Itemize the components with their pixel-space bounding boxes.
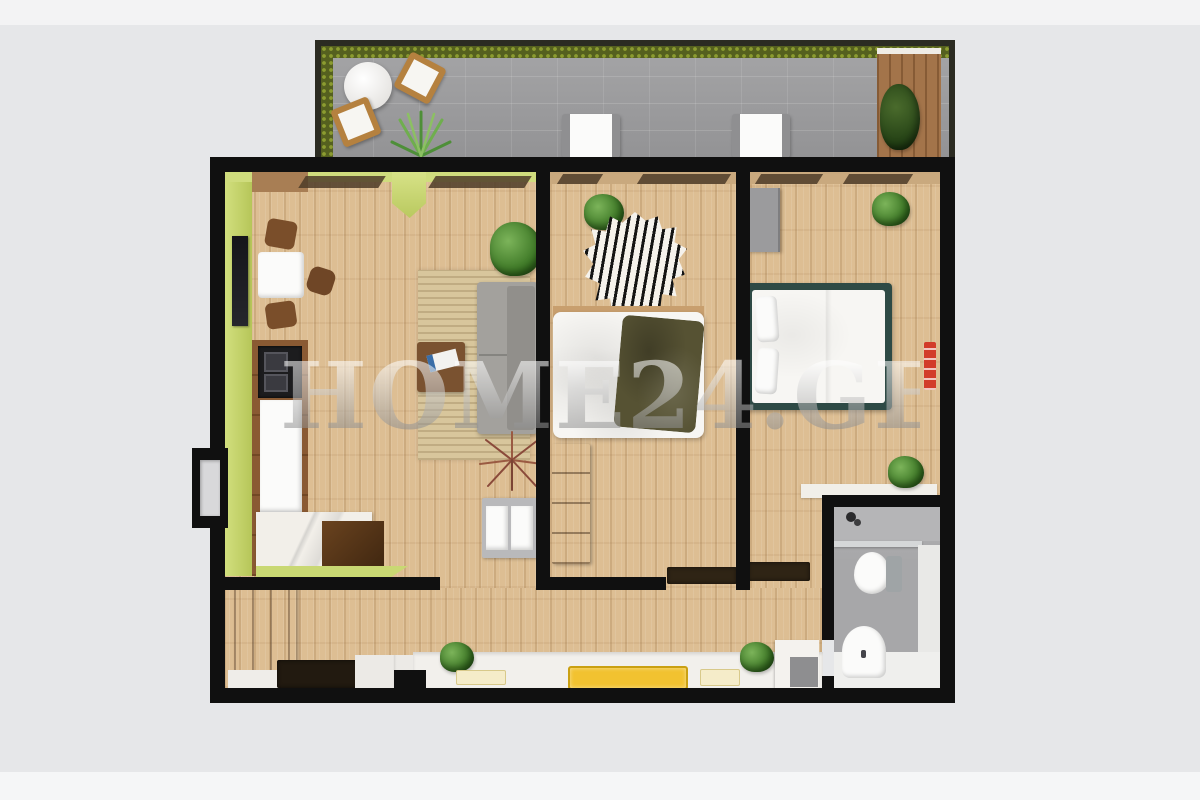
bed2-pillow-1 bbox=[754, 295, 779, 342]
bedroom1-window-pane-1 bbox=[557, 174, 603, 184]
hallway-plant-left bbox=[440, 642, 474, 672]
wall-entry-living bbox=[222, 577, 440, 590]
kitchen-counter-dark-section bbox=[322, 521, 384, 571]
bedroom2-plant-bottom bbox=[888, 456, 924, 488]
toilet-tank bbox=[886, 556, 902, 592]
toilet-bowl bbox=[854, 552, 890, 594]
wall-bathroom-top bbox=[822, 495, 941, 507]
living-gray-cabinet-door-2 bbox=[511, 506, 533, 550]
hallway-tray-yellow bbox=[568, 666, 688, 690]
entry-door-mat bbox=[277, 660, 363, 688]
wall-bathroom-left-lower bbox=[822, 676, 834, 703]
balcony-agave-plant bbox=[388, 108, 454, 164]
balcony-armchair-1 bbox=[562, 114, 620, 158]
wall-exterior-bottom bbox=[210, 688, 955, 703]
dining-chair-bottom bbox=[264, 300, 297, 330]
watermark-text: HOME24.GE bbox=[280, 350, 920, 442]
bedroom2-wardrobe bbox=[748, 188, 780, 252]
bathroom-right-shelf bbox=[918, 545, 940, 652]
page-bottom-strip bbox=[0, 772, 1200, 800]
bedroom1-window-pane-2 bbox=[637, 174, 731, 184]
shower-hose bbox=[854, 519, 861, 526]
hallway-tray-small-left bbox=[456, 670, 506, 685]
bedroom2-plant-top bbox=[872, 192, 910, 226]
living-window-pane-2 bbox=[428, 176, 531, 188]
wall-exterior-left bbox=[210, 157, 225, 703]
bathroom-door-step bbox=[790, 657, 818, 687]
living-left-accent-wall bbox=[224, 172, 252, 576]
entry-door-step bbox=[394, 670, 426, 703]
dining-table bbox=[258, 252, 304, 298]
living-top-wood-band bbox=[252, 172, 308, 192]
dining-chair-top bbox=[264, 218, 298, 251]
wall-exterior-top bbox=[210, 157, 955, 172]
bedroom1-dresser bbox=[552, 444, 590, 564]
balcony-hedge-left bbox=[321, 46, 333, 158]
hallway-plant-right bbox=[740, 642, 774, 672]
shower-glass-partition bbox=[834, 541, 922, 547]
bedroom1-door-mat bbox=[667, 567, 737, 584]
balcony-corner-plant bbox=[880, 84, 920, 150]
wall-bathroom-left-upper bbox=[822, 495, 834, 640]
tv-panel bbox=[232, 236, 248, 326]
living-gray-cabinet-door-1 bbox=[486, 506, 508, 550]
balcony-armchair-2 bbox=[732, 114, 790, 158]
entry-white-floor-left bbox=[228, 670, 278, 688]
living-window-pane-1 bbox=[298, 176, 385, 188]
sink-drain-dot bbox=[861, 650, 866, 658]
wall-hallway-bedroom1 bbox=[536, 577, 666, 590]
floor-plan-image: HOME24.GE bbox=[0, 0, 1200, 800]
bedroom2-window-pane-2 bbox=[843, 174, 913, 184]
left-wall-shaft-window bbox=[200, 460, 220, 516]
page-top-strip bbox=[0, 0, 1200, 25]
hallway-tray-small-right bbox=[700, 669, 740, 686]
wall-hallway-stub bbox=[736, 577, 750, 590]
sofa-side-plant bbox=[490, 222, 542, 276]
bedroom2-window-pane-1 bbox=[755, 174, 823, 184]
bedroom2-door-mat bbox=[748, 562, 810, 581]
